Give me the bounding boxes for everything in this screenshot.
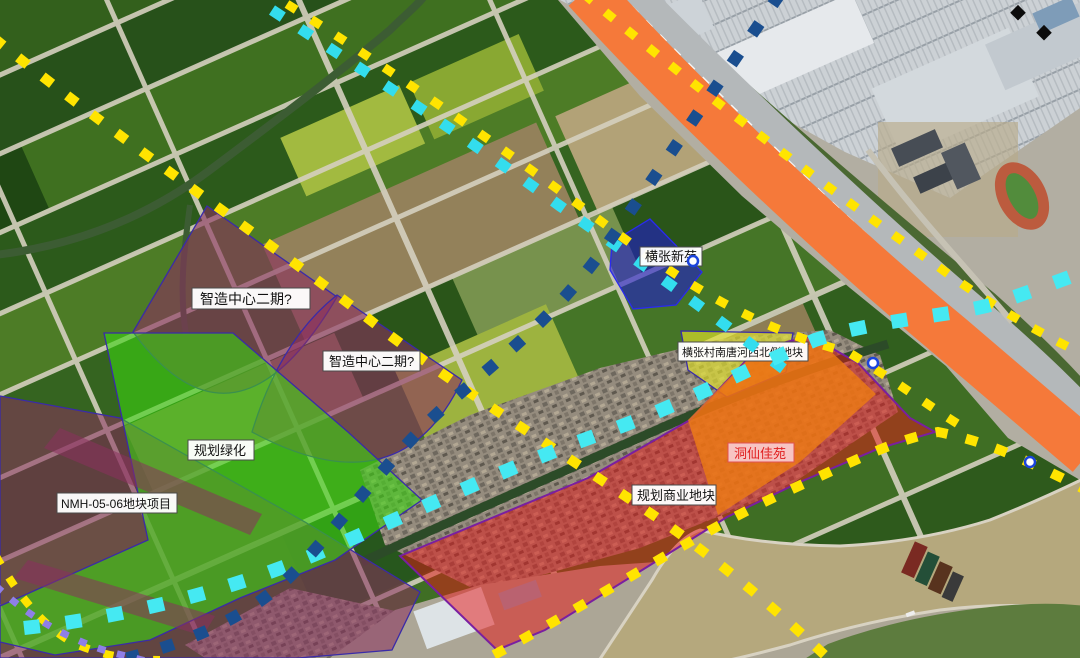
label-red-commercial-text: 规划商业地块: [637, 488, 715, 503]
map-canvas: 横张村南唐河西北侧地块 智造中心二期? 智造中心二期? 规划绿化 NMH-05-…: [0, 0, 1080, 658]
label-plot2-text: 智造中心二期?: [329, 354, 414, 369]
label-red-commercial: 规划商业地块: [632, 485, 716, 505]
label-nmh-plot-text: NMH-05-06地块项目: [61, 497, 171, 511]
label-greening: 规划绿化: [188, 440, 254, 460]
label-plot1-text: 智造中心二期?: [200, 291, 292, 307]
label-orange-residential-text: 洞仙佳苑: [734, 446, 786, 461]
vertex-marker: [868, 358, 878, 368]
label-orange-residential: 洞仙佳苑: [728, 443, 794, 462]
satellite-map[interactable]: 横张村南唐河西北侧地块 智造中心二期? 智造中心二期? 规划绿化 NMH-05-…: [0, 0, 1080, 658]
vertex-marker: [1025, 457, 1035, 467]
vertex-marker: [688, 256, 698, 266]
label-plot1: 智造中心二期?: [192, 288, 310, 309]
label-plot2: 智造中心二期?: [323, 351, 420, 371]
label-greening-text: 规划绿化: [194, 443, 246, 458]
label-nmh-plot: NMH-05-06地块项目: [57, 493, 177, 513]
